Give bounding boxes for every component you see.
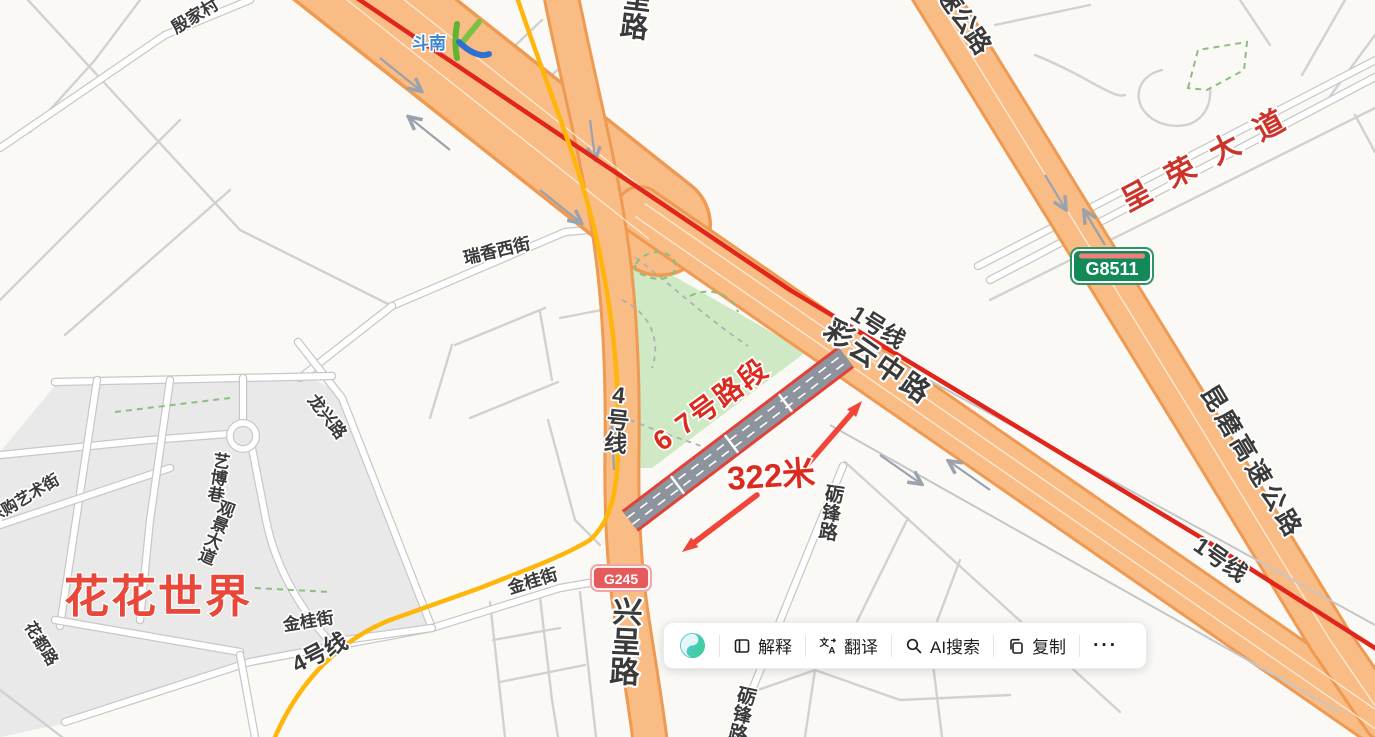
more-button[interactable]: ··· xyxy=(1093,635,1118,657)
ai-search-button[interactable]: AI搜索 xyxy=(905,633,980,658)
translate-label: 翻译 xyxy=(844,633,878,658)
poi-label-huahua-world: 花花世界 xyxy=(64,572,252,622)
book-icon xyxy=(733,637,751,655)
badge-g245-label: G245 xyxy=(604,571,638,587)
annotation-distance-label: 322米 xyxy=(726,454,816,497)
explain-button[interactable]: 解释 xyxy=(733,633,792,658)
copy-icon xyxy=(1007,637,1025,655)
ai-assistant-logo-icon[interactable] xyxy=(679,632,706,659)
translate-icon: 文 A xyxy=(819,637,837,655)
badge-g245: G245 xyxy=(590,564,652,592)
badge-g8511: G8511 xyxy=(1070,247,1154,285)
toolbar-divider xyxy=(891,635,892,657)
toolbar-divider xyxy=(719,635,720,657)
svg-text:A: A xyxy=(829,645,836,655)
ai-search-label: AI搜索 xyxy=(930,633,980,658)
copy-button[interactable]: 复制 xyxy=(1007,633,1066,658)
translate-button[interactable]: 文 A 翻译 xyxy=(819,633,878,658)
badge-g8511-label: G8511 xyxy=(1085,259,1138,279)
toolbar-divider xyxy=(805,635,806,657)
toolbar-divider xyxy=(993,635,994,657)
toolbar-divider xyxy=(1079,635,1080,657)
station-label-dounan: 斗南 xyxy=(412,33,446,53)
search-icon xyxy=(905,637,923,655)
copy-label: 复制 xyxy=(1032,633,1066,658)
ai-toolbar: 解释 文 A 翻译 AI搜索 复制 ··· xyxy=(663,622,1147,669)
explain-label: 解释 xyxy=(758,633,792,658)
map-screenshot: G8511 G245 斗南 殷家村 呈路 速公路 瑞香西街 1号线 彩云中路 呈… xyxy=(0,0,1375,737)
